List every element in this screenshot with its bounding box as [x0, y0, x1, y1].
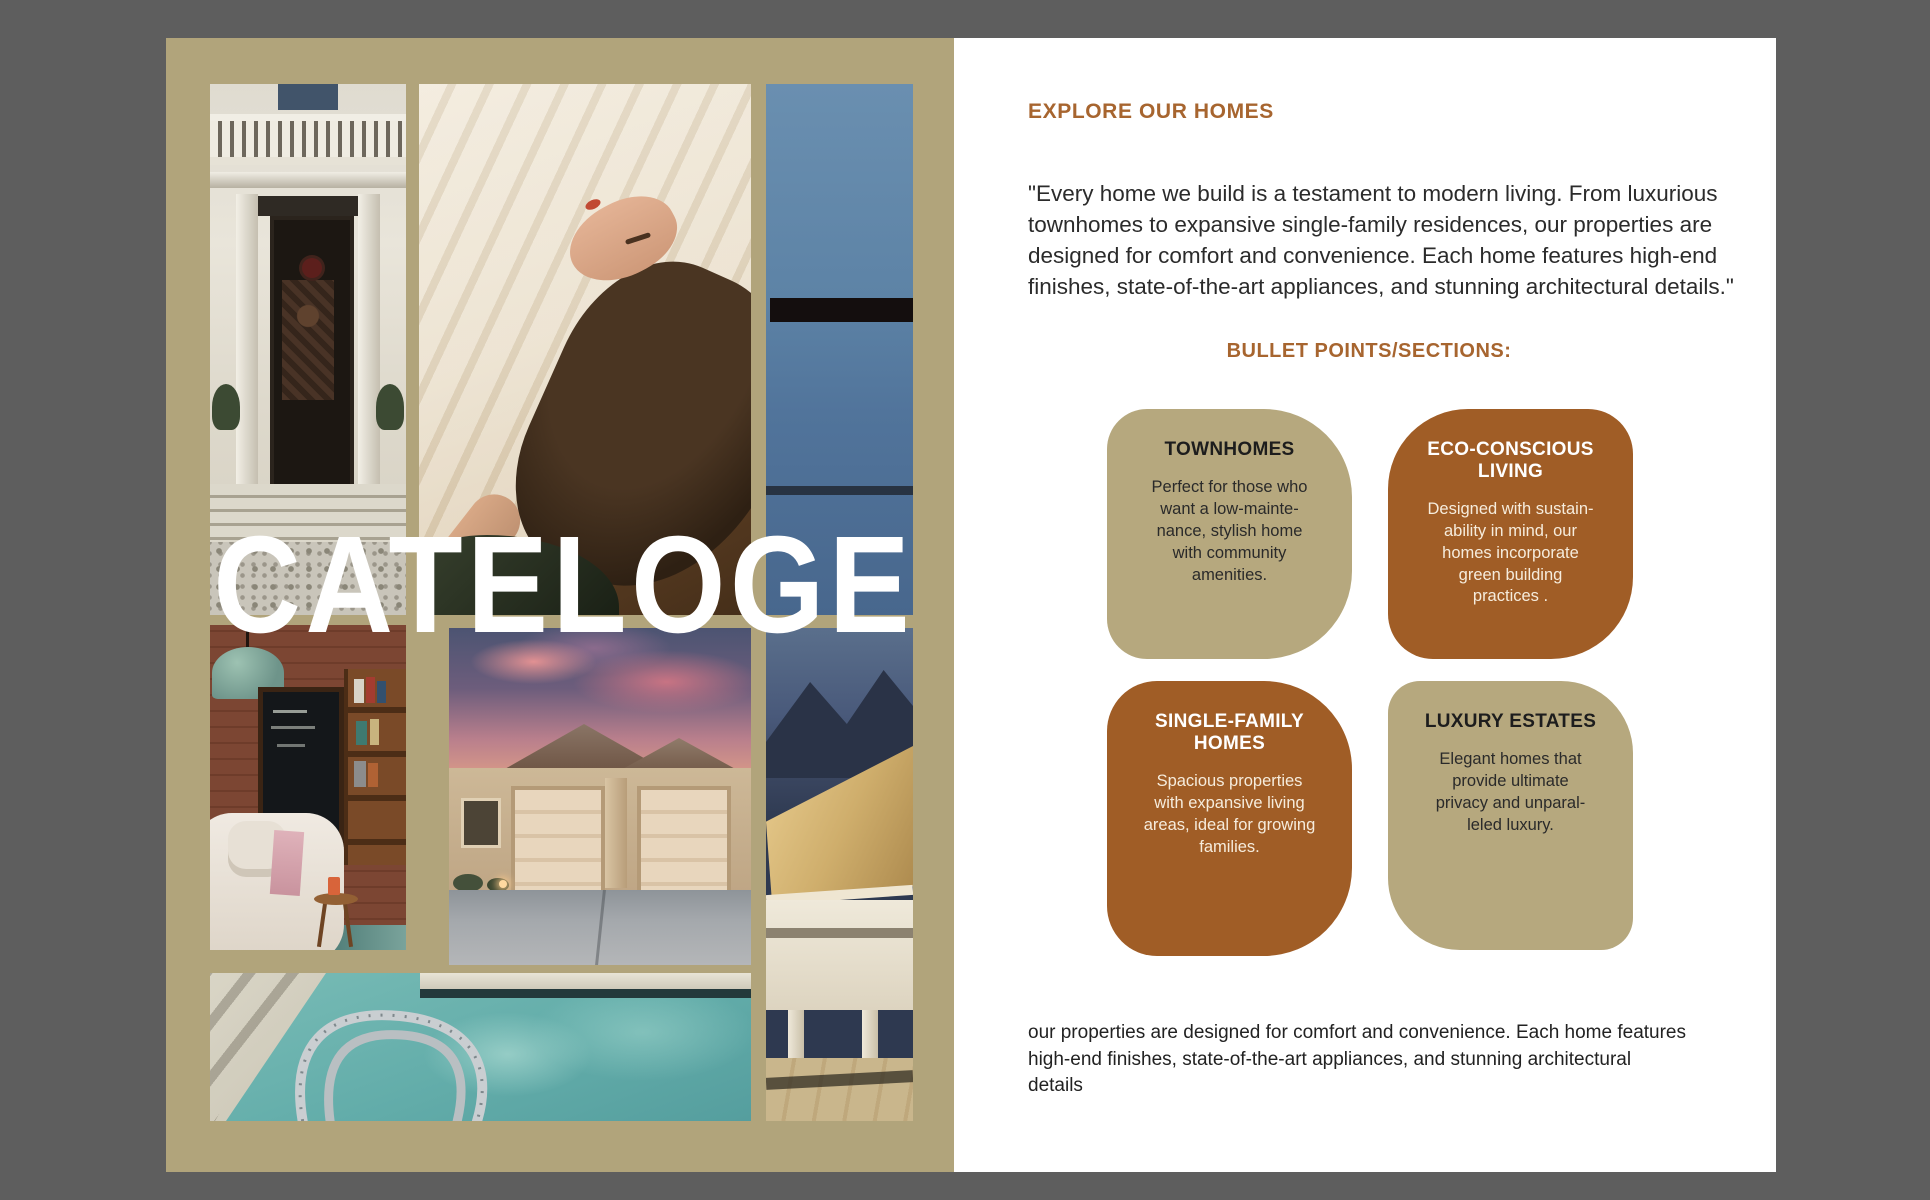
card-body: Spacious properties with expansive livin…: [1131, 771, 1328, 859]
photo-swimming-pool: [210, 973, 751, 1121]
footer-paragraph: our properties are designed for comfort …: [1028, 1020, 1688, 1100]
cover-page: CATELOGE: [166, 38, 954, 1172]
explore-heading: EXPLORE OUR HOMES: [1028, 100, 1274, 124]
pink-blanket: [270, 830, 304, 896]
card-eco-conscious-living: ECO-CONSCIOUS LIVING Designed with susta…: [1388, 409, 1633, 659]
yard-light: [499, 880, 507, 888]
front-window: [461, 798, 501, 848]
card-title: LUXURY ESTATES: [1412, 711, 1609, 733]
card-single-family-homes: SINGLE-FAMILY HOMES Spacious properties …: [1107, 681, 1352, 956]
card-body: Designed with sustain- ability in mind, …: [1412, 499, 1609, 609]
column-left: [236, 194, 258, 484]
cornice: [210, 172, 406, 188]
photo-grand-piano: [766, 628, 913, 1121]
brochure-spread: CATELOGE EXPLORE OUR HOMES "Every home w…: [0, 0, 1930, 1200]
bullet-points-heading: BULLET POINTS/SECTIONS:: [1107, 340, 1631, 363]
door-wreath: [302, 258, 322, 278]
garage-door-left: [511, 786, 605, 894]
cover-title: CATELOGE: [213, 516, 906, 654]
front-door: [270, 216, 354, 492]
bookshelf: [344, 669, 406, 865]
orange-cup: [328, 877, 340, 895]
piano-body: [766, 900, 913, 1010]
garage-door-right: [637, 786, 731, 894]
card-luxury-estates: LUXURY ESTATES Elegant homes that provid…: [1388, 681, 1633, 950]
door-glass-panels: [282, 280, 334, 400]
piano-keybed: [766, 928, 913, 938]
plant-left: [212, 384, 240, 430]
card-body: Elegant homes that provide ultimate priv…: [1412, 749, 1609, 837]
door-lintel: [258, 196, 358, 216]
card-body: Perfect for those who want a low-mainte-…: [1131, 477, 1328, 587]
info-page: EXPLORE OUR HOMES "Every home we build i…: [954, 38, 1776, 1172]
wall-pillar: [605, 778, 627, 888]
wood-floor: [766, 1058, 913, 1121]
card-townhomes: TOWNHOMES Perfect for those who want a l…: [1107, 409, 1352, 659]
window-mullion-band: [770, 298, 913, 322]
column-right: [358, 194, 380, 484]
photo-cozy-interior: [210, 625, 406, 950]
card-title: TOWNHOMES: [1131, 439, 1328, 461]
entrance-window: [278, 84, 338, 110]
card-title: SINGLE-FAMILY HOMES: [1131, 711, 1328, 755]
pool-handrail: [210, 973, 751, 1121]
photo-house-dusk: [449, 628, 751, 965]
window-mullion-line: [766, 486, 913, 495]
plant-right: [376, 384, 404, 430]
card-title: ECO-CONSCIOUS LIVING: [1412, 439, 1609, 483]
balustrade: [210, 114, 406, 165]
intro-quote: "Every home we build is a testament to m…: [1028, 178, 1738, 302]
